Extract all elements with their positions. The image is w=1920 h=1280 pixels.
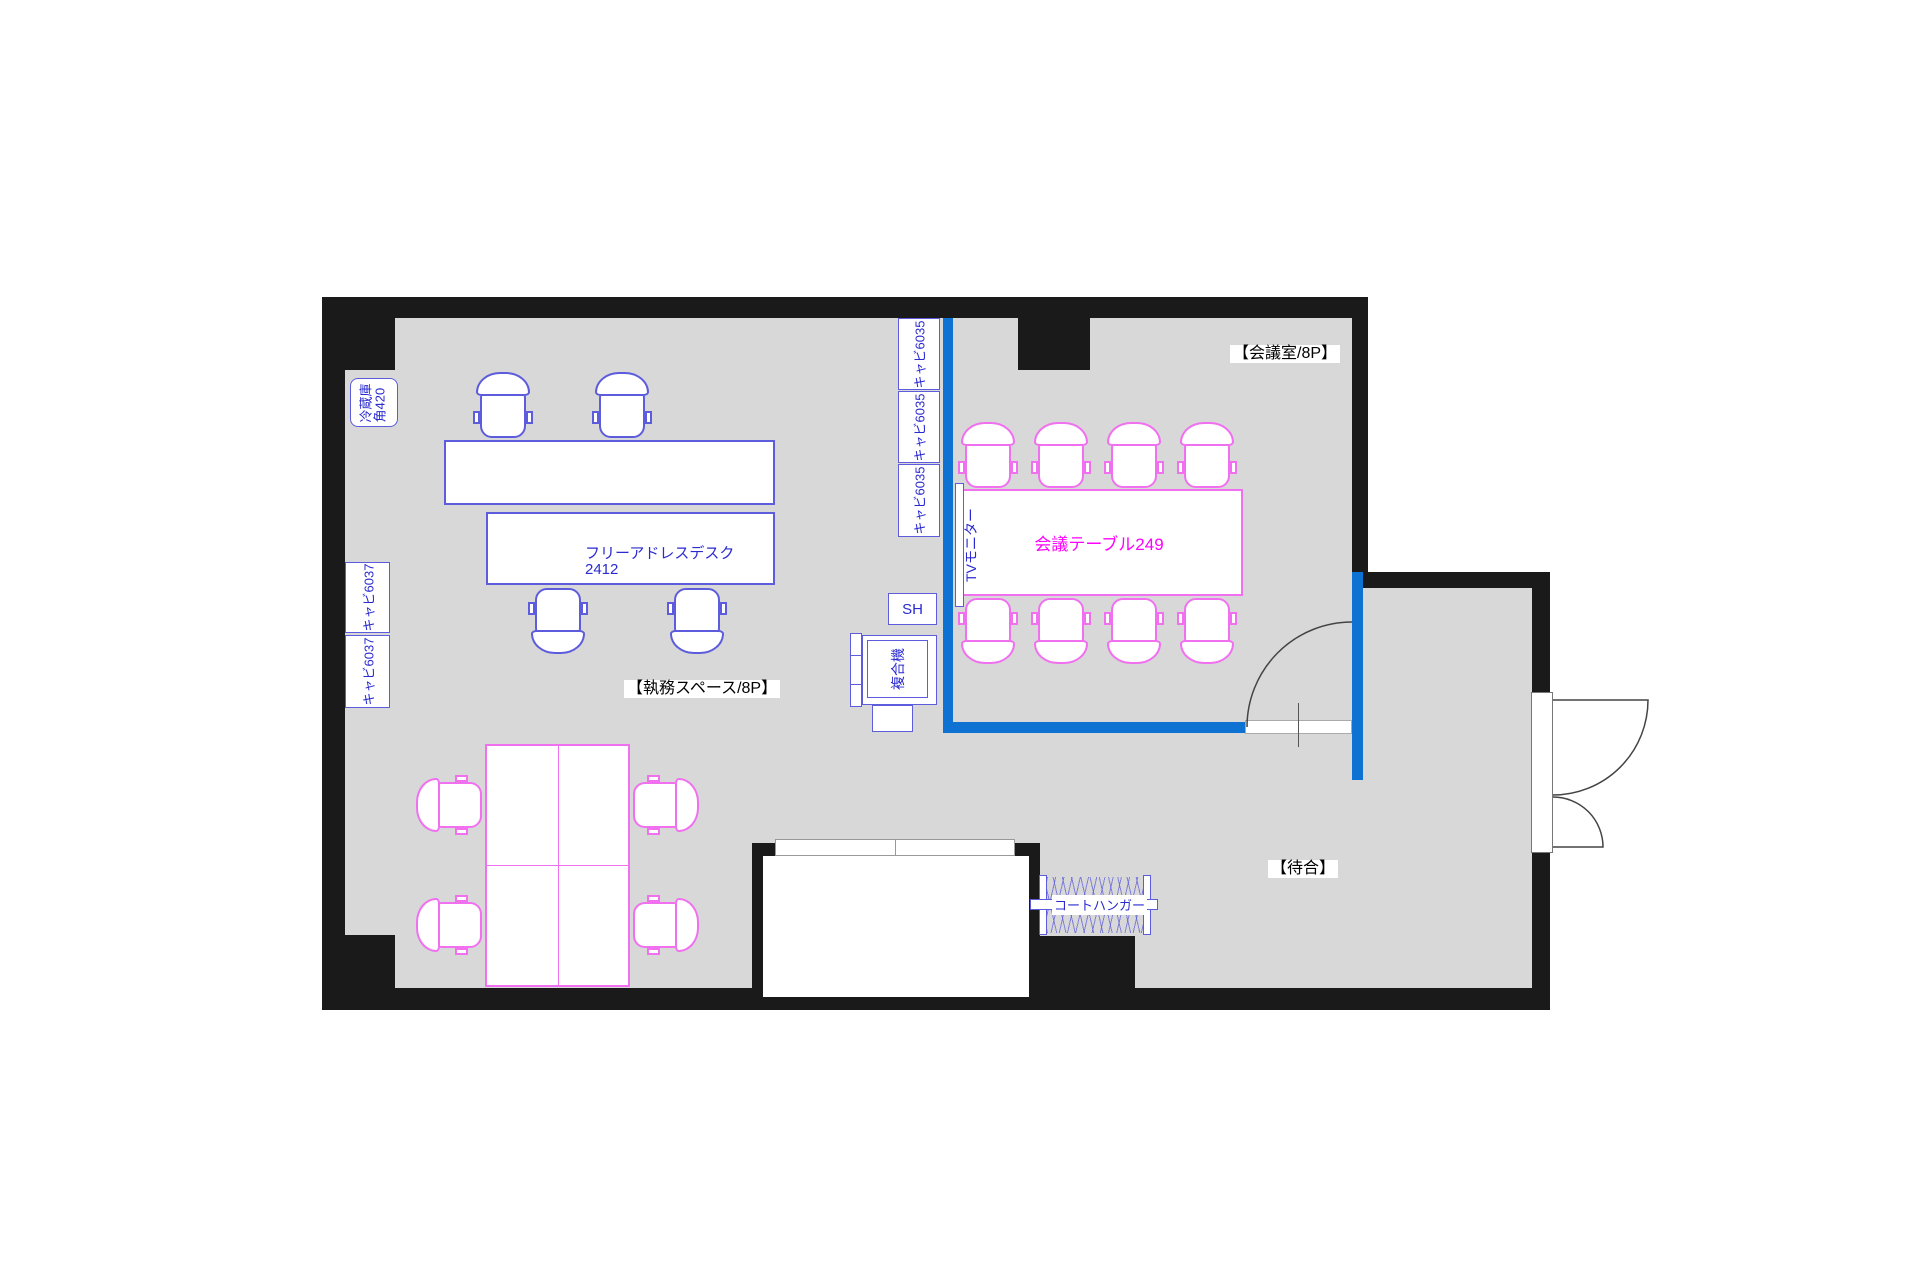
wall-right-upper-segment	[1532, 573, 1550, 693]
wall-waiting-top	[1352, 572, 1550, 588]
meeting-table-label: 会議テーブル249	[1034, 530, 1163, 555]
sh-shelf: SH	[888, 593, 937, 625]
island-desk	[485, 744, 630, 987]
meeting-room-door-tick	[1298, 703, 1299, 747]
bottom-bay-opening	[763, 856, 1029, 997]
wall-meeting-right-vertical	[1352, 297, 1368, 588]
cabinet-6037: キャビ6037	[345, 635, 390, 708]
bay-left-wall	[752, 843, 763, 998]
tv-monitor-label: TVモニター	[961, 508, 981, 582]
cabinet-6035: キャビ6035	[898, 464, 940, 537]
meeting-chair	[1034, 418, 1088, 490]
cabinet-6037-label: キャビ6037	[358, 638, 377, 706]
column-top-middle	[1018, 310, 1090, 370]
meeting-chair	[1034, 596, 1088, 668]
cabinet-6035-label: キャビ6035	[910, 393, 929, 461]
island-chair	[412, 778, 484, 832]
meeting-chair	[961, 418, 1015, 490]
meeting-chair	[961, 596, 1015, 668]
entry-door-leaf-large	[1553, 700, 1648, 795]
cabinet-6037-label: キャビ6037	[358, 564, 377, 632]
island-chair	[631, 898, 703, 952]
meeting-chair	[1180, 418, 1234, 490]
copier: 複合機	[867, 640, 928, 698]
entry-door-leaf-small	[1553, 797, 1603, 847]
bay-window-divider	[895, 840, 896, 855]
work-space-label: 【執務スペース/8P】	[624, 680, 780, 698]
cabinet-6035: キャビ6035	[898, 391, 940, 463]
meeting-chair	[1180, 596, 1234, 668]
bay-window-sill	[775, 839, 1015, 856]
wall-right-lower-segment	[1532, 852, 1550, 1010]
entry-door-frame[interactable]	[1531, 692, 1553, 853]
island-chair	[631, 778, 703, 832]
floor-waiting-area	[1352, 588, 1532, 988]
cabinet-6035-label: キャビ6035	[910, 320, 929, 388]
refrigerator-label: 冷蔵庫 角420	[360, 383, 388, 422]
waiting-area-label: 【待合】	[1268, 860, 1338, 878]
column-top-left	[335, 310, 395, 370]
meeting-chair	[1107, 418, 1161, 490]
island-chair	[412, 898, 484, 952]
partition-meeting-left	[943, 318, 953, 733]
island-desk-divider-h	[487, 865, 628, 866]
work-chair	[595, 368, 649, 440]
sh-shelf-label: SH	[902, 601, 923, 618]
work-chair	[531, 586, 585, 658]
wall-top	[322, 297, 1368, 318]
coat-hanger-label: コートハンガー	[1054, 898, 1145, 913]
refrigerator: 冷蔵庫 角420	[350, 378, 398, 427]
cabinet-6037: キャビ6037	[345, 562, 390, 633]
floor-plan-canvas: フリーアドレスデスク 2412 冷蔵庫 角420 キャビ6037 キャビ6037…	[0, 0, 1920, 1280]
meeting-table: 会議テーブル249	[955, 489, 1243, 596]
cabinet-6035: キャビ6035	[898, 318, 940, 390]
work-chair	[476, 368, 530, 440]
copier-front-tray	[872, 705, 913, 732]
wall-block-right-of-bay	[1029, 936, 1135, 988]
wall-left	[322, 297, 345, 1010]
tv-monitor: TVモニター	[956, 495, 986, 595]
meeting-room-label: 【会議室/8P】	[1230, 345, 1340, 363]
column-bottom-left	[335, 935, 395, 998]
copier-label: 複合機	[888, 648, 908, 690]
meeting-chair	[1107, 596, 1161, 668]
work-chair	[670, 586, 724, 658]
coat-hanger: コートハンガー	[1052, 895, 1147, 915]
free-desk-label: フリーアドレスデスク 2412	[585, 546, 734, 578]
cabinet-6035-label: キャビ6035	[910, 467, 929, 535]
copier-tray	[850, 633, 862, 707]
partition-meeting-bottom	[943, 722, 1245, 733]
free-address-desk-upper	[444, 440, 775, 505]
partition-waiting-left	[1352, 572, 1363, 780]
